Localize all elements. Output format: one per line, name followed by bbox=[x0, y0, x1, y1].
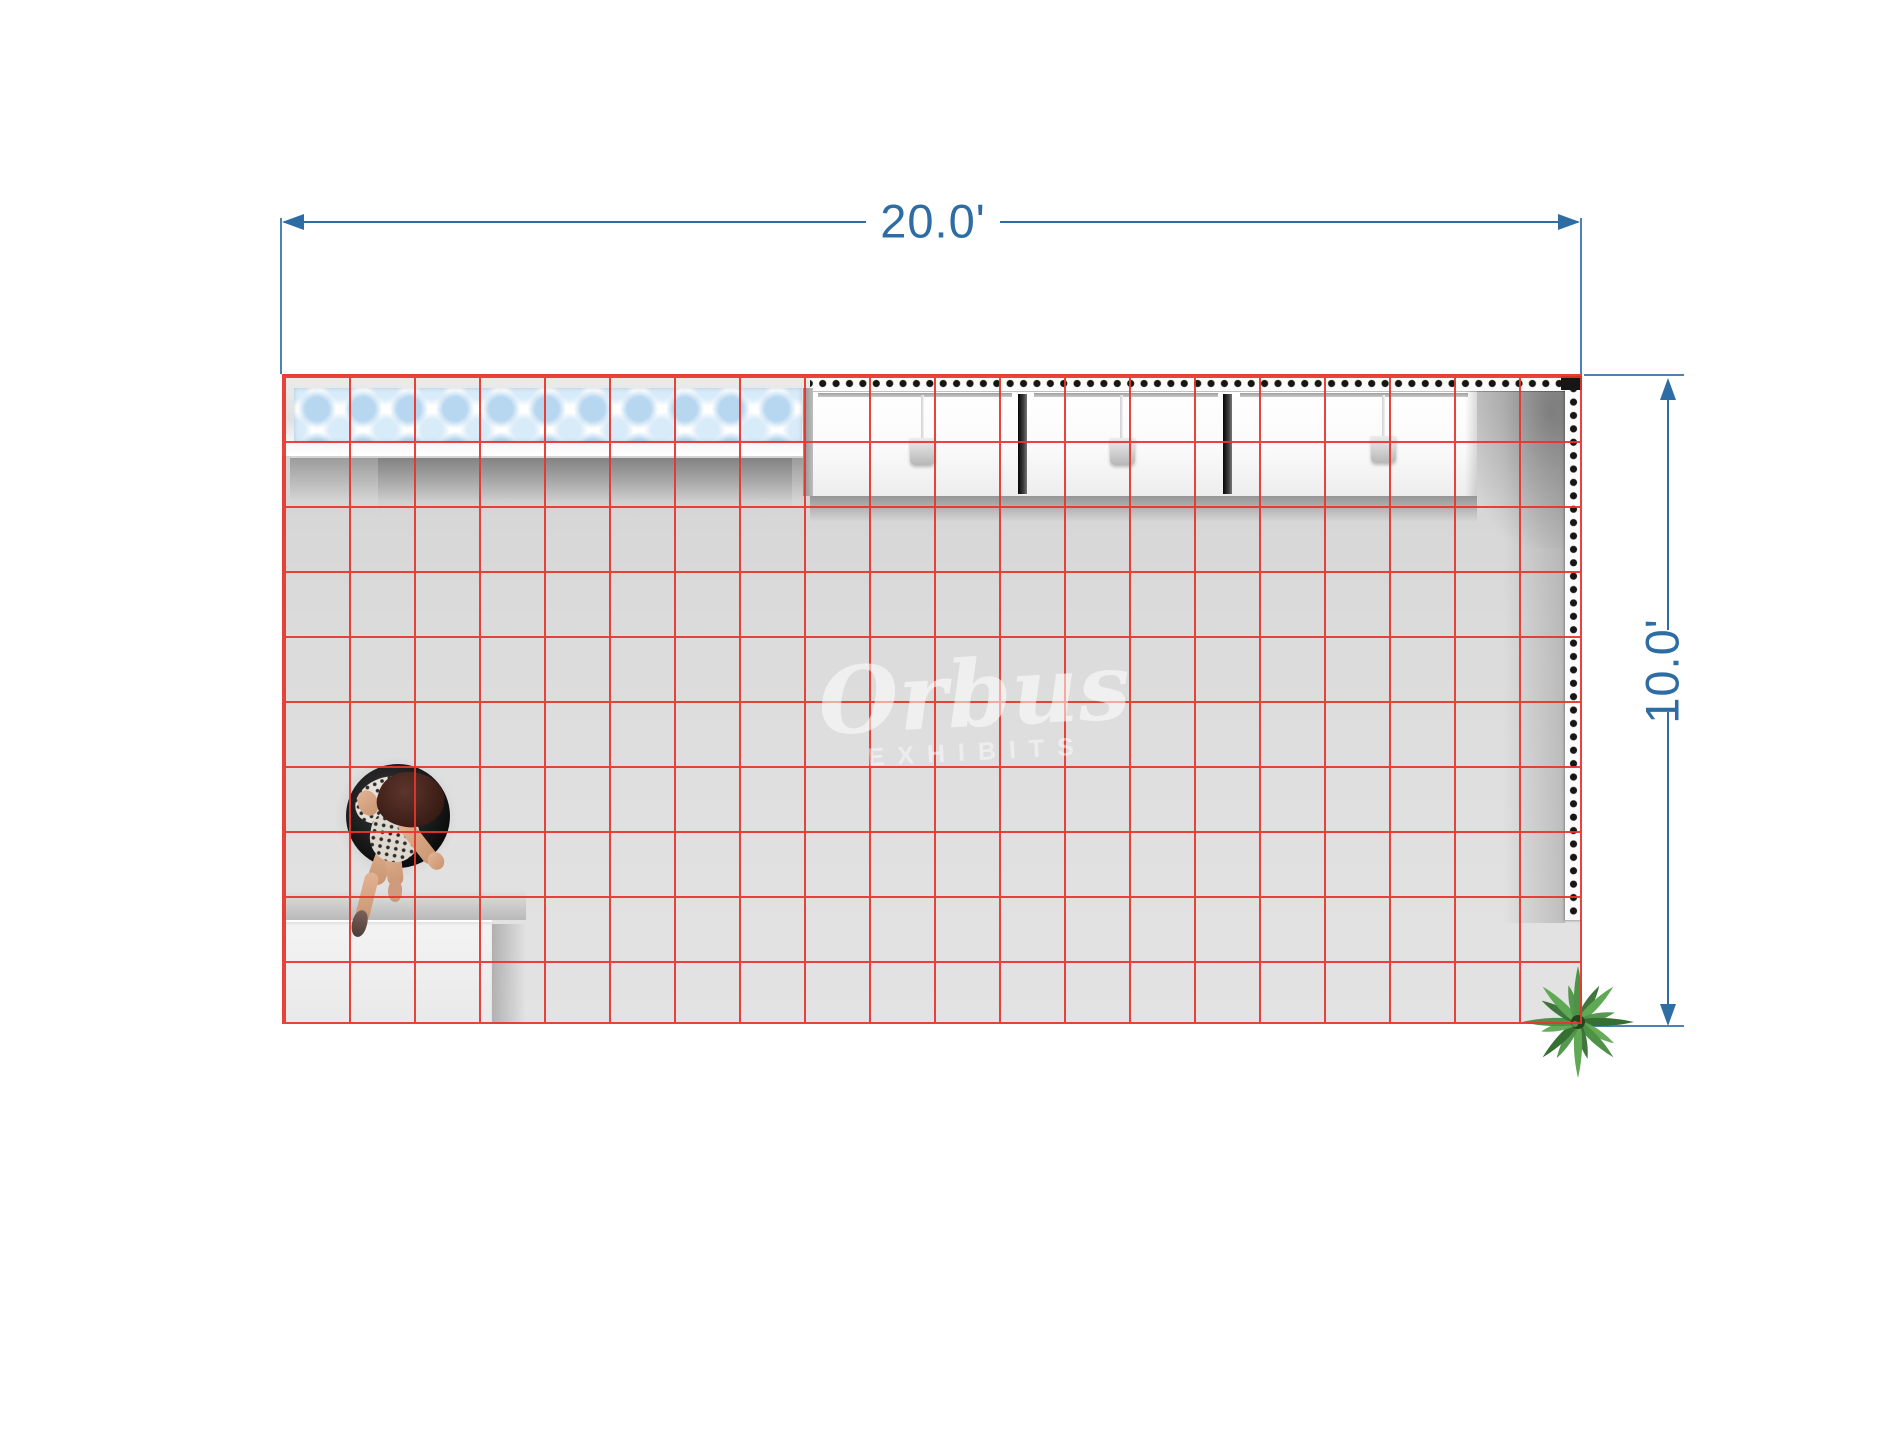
watermark-script-text: Orbus bbox=[816, 645, 1132, 744]
extension-line-top bbox=[1584, 374, 1684, 376]
floor-shade-under-lightbox bbox=[290, 458, 806, 502]
person-foot bbox=[387, 880, 403, 903]
wall-corner-post bbox=[1561, 376, 1582, 390]
width-dimension-label: 20.0' bbox=[880, 193, 985, 248]
cabinet-pull-tab-1 bbox=[910, 438, 935, 465]
floor-shade-top-right-corner bbox=[1462, 388, 1565, 548]
width-dimension-line-left-segment bbox=[284, 221, 866, 223]
cabinet-pull-tab-2 bbox=[1110, 438, 1135, 465]
floor-shade-right-wall bbox=[1503, 388, 1565, 923]
cabinet-pull-cord-3 bbox=[1382, 395, 1385, 437]
cabinet-top-edge-3 bbox=[1240, 393, 1468, 397]
height-dimension-line-bottom-segment bbox=[1667, 712, 1669, 1022]
cabinet-divider-2 bbox=[1223, 394, 1232, 494]
cabinet-right-edge-shade bbox=[1465, 391, 1477, 496]
cabinet-top-edge-2 bbox=[1034, 393, 1218, 397]
cabinet-divider-1 bbox=[1018, 394, 1027, 494]
dotted-wall-right bbox=[1565, 376, 1582, 920]
cabinet-pull-cord-1 bbox=[921, 395, 924, 439]
watermark-caption-text: EXHIBITS bbox=[821, 730, 1134, 775]
extension-line-left bbox=[280, 218, 282, 374]
storage-cabinets bbox=[810, 391, 1477, 496]
cabinet-pull-cord-2 bbox=[1120, 395, 1123, 439]
backlit-counter bbox=[282, 376, 810, 456]
arrowhead-up-icon bbox=[1660, 378, 1676, 400]
floor-shade-counter-right bbox=[492, 924, 526, 1024]
cabinet-left-gap-shadow bbox=[803, 388, 813, 496]
dotted-wall-top bbox=[810, 376, 1582, 391]
potted-plant-icon bbox=[1513, 957, 1643, 1087]
arrowhead-left-icon bbox=[282, 214, 304, 230]
polka-dot-graphic-panel bbox=[294, 388, 802, 442]
width-dimension-line-right-segment bbox=[1000, 221, 1578, 223]
floor-shade-under-lightbox-step bbox=[378, 458, 792, 510]
arrowhead-down-icon bbox=[1660, 1004, 1676, 1026]
seated-person bbox=[342, 759, 462, 949]
booth-floor: Orbus EXHIBITS bbox=[282, 374, 1582, 1024]
cabinet-top-edge-1 bbox=[818, 393, 1012, 397]
booth-floorplan-render: 20.0' 10.0' bbox=[0, 0, 1900, 1444]
height-dimension-label: 10.0' bbox=[1635, 618, 1690, 723]
height-dimension-line-top-segment bbox=[1667, 384, 1669, 630]
cabinet-pull-tab-3 bbox=[1371, 436, 1396, 463]
floor-shade-under-cabinets bbox=[810, 496, 1477, 522]
arrowhead-right-icon bbox=[1558, 214, 1580, 230]
extension-line-right bbox=[1580, 218, 1582, 374]
watermark: Orbus EXHIBITS bbox=[816, 645, 1133, 775]
